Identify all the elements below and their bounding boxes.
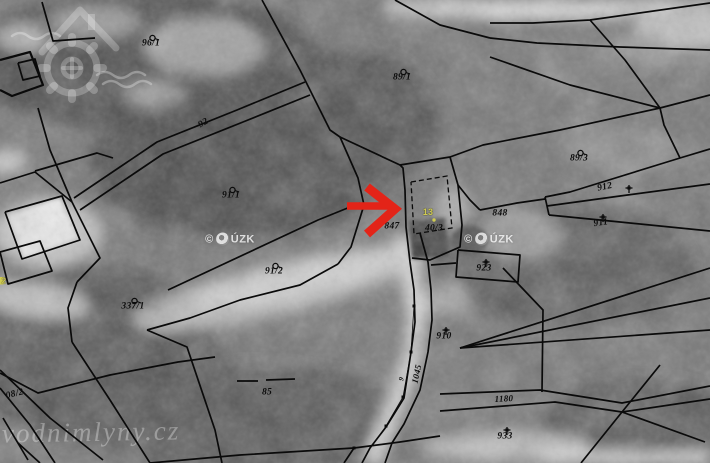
red-pointer-arrow <box>0 0 710 463</box>
cadastral-map-canvas[interactable]: vodnimlyny.cz ©ÚZK©ÚZK <box>0 0 710 463</box>
